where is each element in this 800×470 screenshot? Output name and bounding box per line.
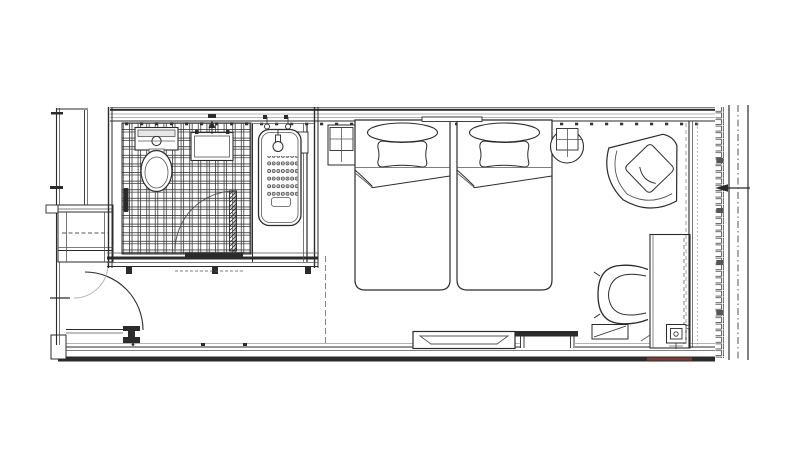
floor-plan-drawing [0,0,800,470]
wall-tick-mark [50,186,63,189]
wall-corner-detail [51,335,66,359]
exterior-wall-hatch [716,107,725,358]
shower-head-icon [273,142,283,152]
wall-niche-shelf [413,332,515,349]
headboard-panel [422,117,482,122]
twin-bed-2 [457,120,552,290]
wall-recess-duct [515,331,578,348]
twin-bed-1 [355,120,450,290]
lounge-armchair [589,111,705,226]
red-wall-segment [647,358,692,361]
tub-step [272,198,291,207]
door-swing-arc [85,272,143,330]
grab-bar [124,188,129,212]
bathtub-enclosure [252,115,314,262]
desk-chair [594,265,648,324]
round-side-table [551,129,584,164]
bathroom [107,107,318,274]
nightstand [328,125,358,165]
floor-plan-canvas [0,0,800,470]
door-leaf-jamb [123,326,140,346]
entry-door [66,264,143,346]
anti-slip-dot-mat [267,156,298,197]
door-leaf [230,191,237,251]
luggage-rack [592,325,628,340]
secondary-swing-arc [74,264,108,298]
wall-tick-mark [51,112,63,115]
window-facade-wall [715,105,750,360]
